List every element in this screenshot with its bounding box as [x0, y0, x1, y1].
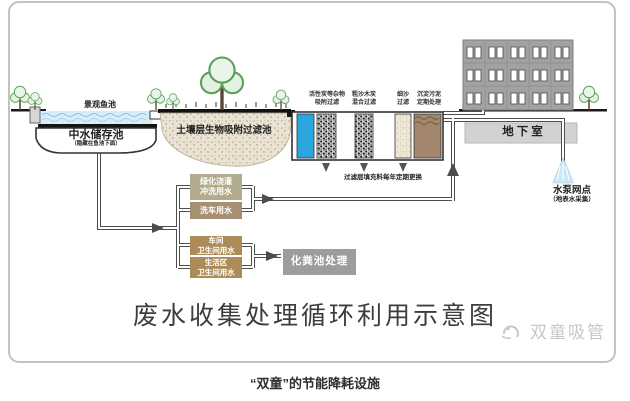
shuangtong-logo-icon — [500, 320, 524, 342]
filter-col4-line1: 沉淀污泥 — [407, 92, 451, 100]
carbon-column-2 — [355, 114, 373, 158]
filter-col4-label: 沉淀污泥 定期处理 — [407, 92, 451, 107]
watermark-text: 双童吸管 — [530, 318, 606, 343]
tree-icon — [201, 58, 243, 110]
filter-col2-line2: 混合过滤 — [340, 100, 388, 108]
tree-icon — [580, 86, 599, 110]
use-box-living-line1: 生活区 — [205, 258, 228, 267]
septic-box: 化粪池处理 — [283, 249, 356, 275]
use-box-carwash-line1: 洗车用水 — [200, 206, 232, 216]
fish-pond — [30, 107, 162, 128]
filter-note-label: 过滤层填充料每年定期更换 — [318, 174, 448, 182]
use-box-workshop: 车间 卫生间用水 — [190, 236, 242, 255]
tree-icon — [11, 86, 30, 110]
filter-col4-line2: 定期处理 — [407, 100, 451, 108]
pump-point-label: 水泵网点 — [534, 185, 610, 196]
sand-column — [395, 114, 411, 158]
fish-pond-label: 景观鱼池 — [55, 100, 145, 110]
caption: “双童”的节能降耗设施 — [0, 373, 630, 392]
basement-label: 地下室 — [492, 126, 556, 140]
water-column — [297, 114, 314, 158]
filter-col2-line1: 粗沙木炭 — [340, 92, 388, 100]
soil-filter-label: 土壤层生物吸附过滤池 — [163, 125, 285, 136]
use-box-workshop-line1: 车间 — [209, 236, 224, 245]
tree-icon — [167, 94, 180, 110]
grass-tufts — [166, 102, 286, 108]
filter-tank — [292, 112, 443, 172]
use-box-greening-line1: 绿化浇灌 — [200, 177, 232, 187]
septic-box-label: 化粪池处理 — [291, 255, 349, 268]
diagram-canvas: 景观鱼池 中水储存池 （隐藏在鱼池下面） 土壤层生物吸附过滤池 活性炭等杂物 吸… — [0, 0, 630, 401]
use-box-workshop-line2: 卫生间用水 — [197, 246, 235, 255]
pump-point-note: （地表水采集） — [534, 196, 610, 204]
factory-building — [463, 40, 573, 110]
use-box-greening: 绿化浇灌 冲洗用水 — [190, 174, 242, 200]
use-box-living-line2: 卫生间用水 — [197, 268, 235, 277]
storage-pool-note: （隐藏在鱼池下面） — [46, 141, 146, 148]
use-box-living: 生活区 卫生间用水 — [190, 257, 242, 278]
sludge-column — [414, 114, 441, 158]
diagram-title: 废水收集处理循环利用示意图 — [95, 296, 535, 332]
tree-icon — [148, 89, 165, 110]
use-box-greening-line2: 冲洗用水 — [200, 187, 232, 197]
watermark: 双童吸管 — [500, 318, 606, 343]
filter-col2-label: 粗沙木炭 混合过滤 — [340, 92, 388, 107]
carbon-column-1 — [317, 114, 336, 158]
use-box-carwash: 洗车用水 — [190, 202, 242, 219]
filter-down-arrow-icons — [322, 163, 407, 172]
